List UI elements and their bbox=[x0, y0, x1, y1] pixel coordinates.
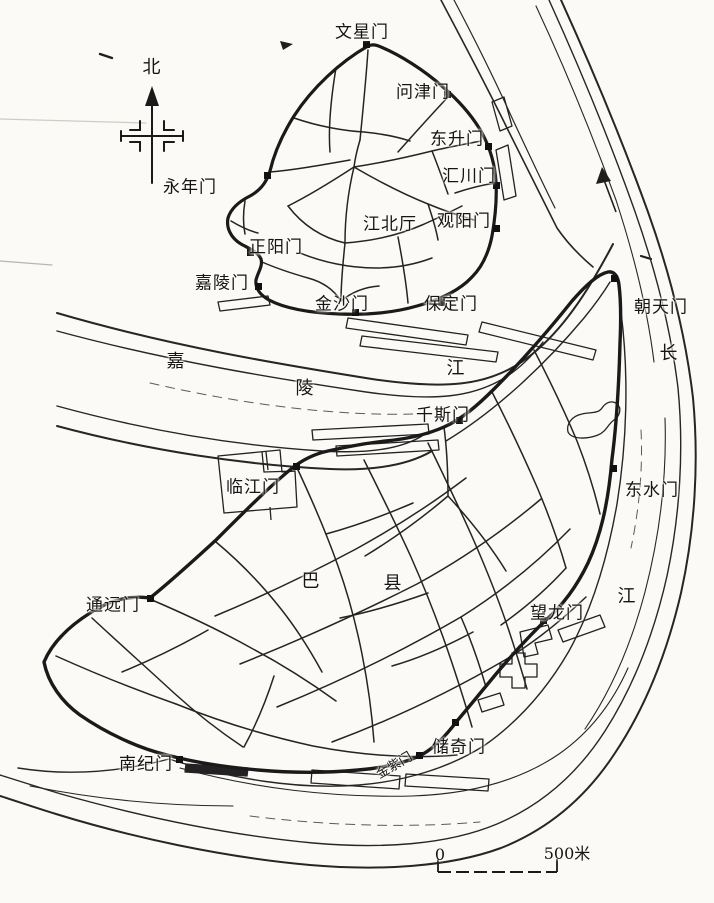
label-zhengyang-gate: 正阳门 bbox=[249, 239, 303, 256]
label-huichuan-gate: 汇川门 bbox=[442, 168, 496, 185]
label-wenxing-gate: 文星门 bbox=[335, 24, 389, 41]
label-jialing-gate: 嘉陵门 bbox=[195, 275, 249, 292]
label-tongyuan-gate: 通远门 bbox=[86, 597, 140, 614]
label-jiangbei-ting: 江北厅 bbox=[363, 216, 417, 233]
label-wenjin-gate: 问津门 bbox=[396, 84, 450, 101]
label-guanyang-gate: 观阳门 bbox=[437, 213, 491, 230]
label-yangtze-river-char-1: 长 bbox=[660, 344, 679, 362]
label-ba-county-char-2: 县 bbox=[384, 574, 403, 592]
label-ba-county-char-1: 巴 bbox=[302, 572, 321, 590]
label-baoding-gate: 保定门 bbox=[424, 296, 478, 313]
label-nanji-gate: 南纪门 bbox=[119, 756, 173, 773]
flow-direction-arrow-icon bbox=[596, 167, 616, 212]
lower-city-wall bbox=[44, 272, 621, 772]
label-jialing-river-char-3: 江 bbox=[447, 359, 466, 377]
label-wanglong-gate: 望龙门 bbox=[530, 605, 584, 622]
label-jialing-river-char-2: 陵 bbox=[296, 379, 315, 397]
label-scale-zero: 0 bbox=[435, 847, 445, 863]
chongqing-old-city-map-drawing bbox=[0, 0, 714, 903]
label-north: 北 bbox=[143, 58, 162, 76]
paper-artifacts bbox=[0, 41, 651, 265]
label-jialing-river-char-1: 嘉 bbox=[167, 352, 186, 370]
gate-markers bbox=[147, 41, 618, 763]
label-linjiang-gate: 临江门 bbox=[226, 479, 280, 496]
jialing-river-lines bbox=[57, 244, 613, 469]
label-dongshui-gate: 东水门 bbox=[625, 482, 679, 499]
map-page: 文星门 北 问津门 东升门 汇川门 永年门 观阳门 江北厅 正阳门 嘉陵门 金沙… bbox=[0, 0, 714, 903]
label-jinsha-gate: 金沙门 bbox=[315, 296, 369, 313]
label-chaotian-gate: 朝天门 bbox=[634, 299, 688, 316]
label-scale-distance: 500米 bbox=[544, 846, 591, 862]
label-yangtze-river-char-2: 江 bbox=[618, 587, 637, 605]
label-dongsheng-gate: 东升门 bbox=[430, 131, 484, 148]
label-yongnian-gate: 永年门 bbox=[163, 179, 217, 196]
label-chuqi-gate: 储奇门 bbox=[432, 739, 486, 756]
compass-rose-icon bbox=[121, 86, 183, 183]
label-qiansi-gate: 千斯门 bbox=[416, 407, 470, 424]
